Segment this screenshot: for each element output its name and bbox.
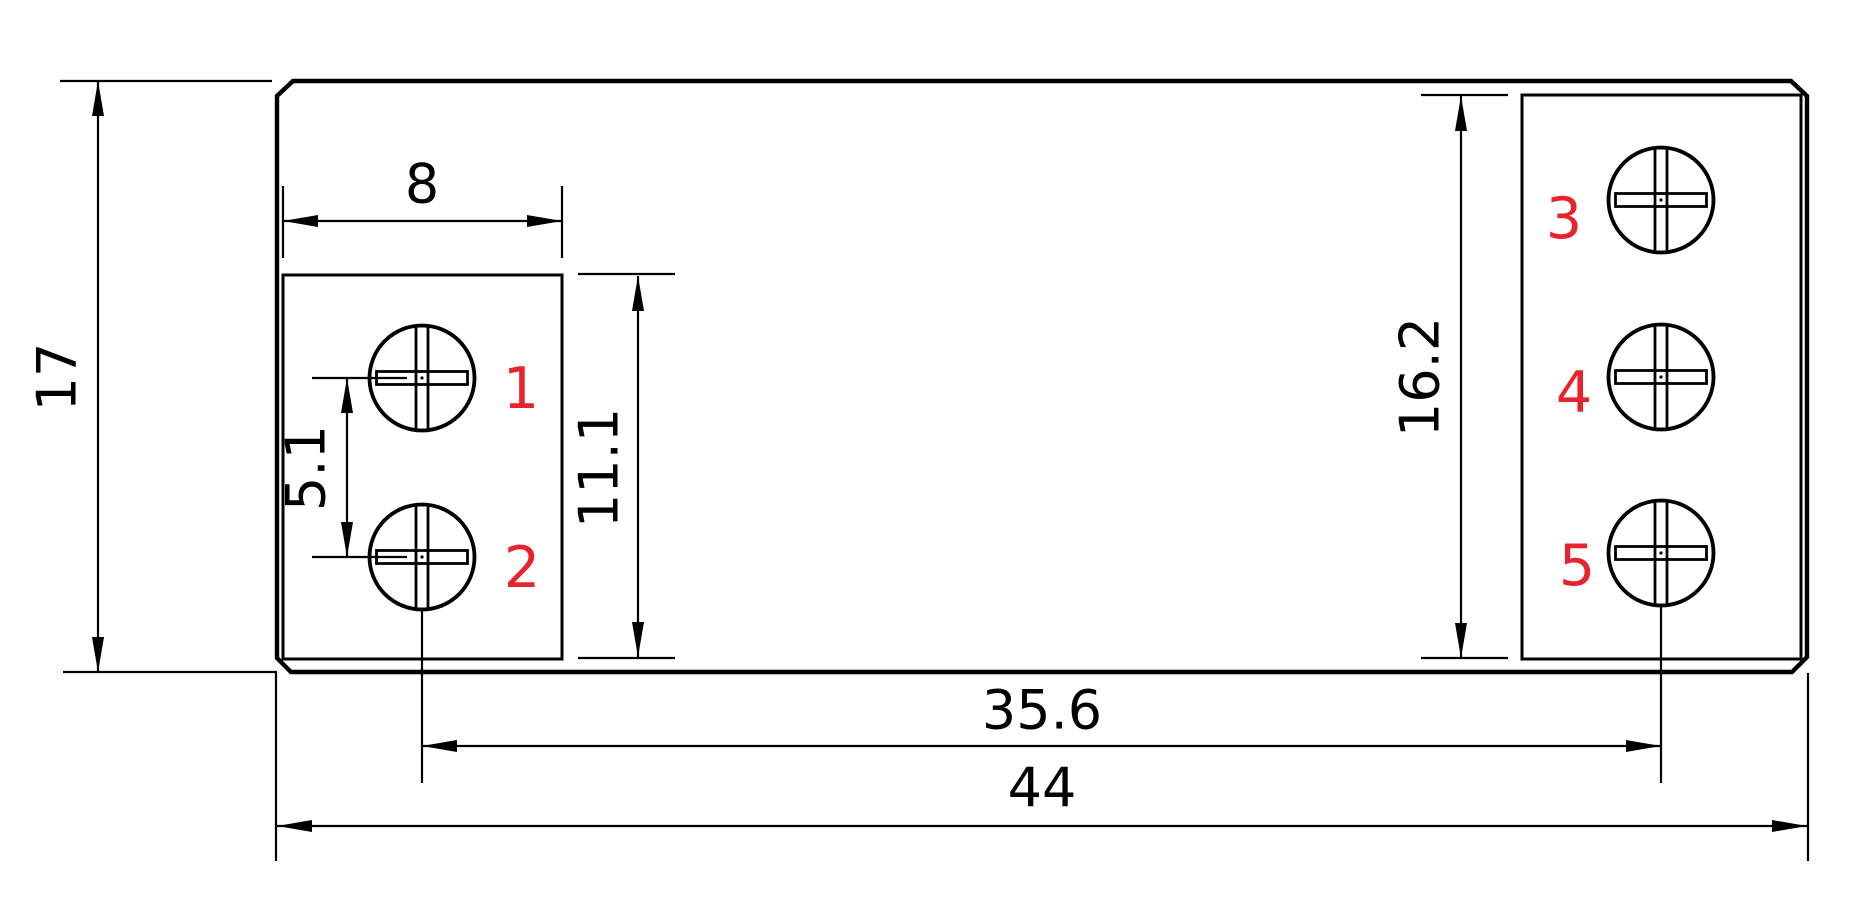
- screw-center-dot: [420, 555, 423, 558]
- dimension-texts: 17 8 5.1 11.1 16.2 35.6 44: [26, 153, 1452, 820]
- screw-terminal-3: [1609, 148, 1714, 253]
- dim-overall-height-label: 17: [26, 343, 89, 412]
- terminal-label-2: 2: [504, 535, 540, 601]
- screw-center-dot: [420, 376, 423, 379]
- terminal-label-3: 3: [1546, 186, 1582, 252]
- screw-center-dot: [1659, 198, 1662, 201]
- dim-right-block-height-label: 16.2: [1389, 317, 1452, 437]
- dim-left-block-width-label: 8: [405, 153, 439, 216]
- technical-drawing: 17 8 5.1 11.1 16.2 35.6 44 1 2 3 4 5: [0, 0, 1866, 901]
- terminal-label-5: 5: [1559, 533, 1595, 599]
- screw-center-dot: [1659, 375, 1662, 378]
- dim-overall-height: [60, 81, 277, 672]
- screw-terminal-5: [1609, 501, 1714, 606]
- screw-terminal-4: [1609, 325, 1714, 430]
- terminal-label-1: 1: [503, 356, 539, 422]
- screw-center-dot: [1659, 551, 1662, 554]
- dim-left-block-height-label: 11.1: [568, 408, 631, 528]
- dim-screw-pitch-label: 5.1: [275, 425, 338, 511]
- dim-screw-span-label: 35.6: [982, 679, 1102, 742]
- dim-overall-width-label: 44: [1008, 757, 1077, 820]
- terminal-label-4: 4: [1556, 360, 1592, 426]
